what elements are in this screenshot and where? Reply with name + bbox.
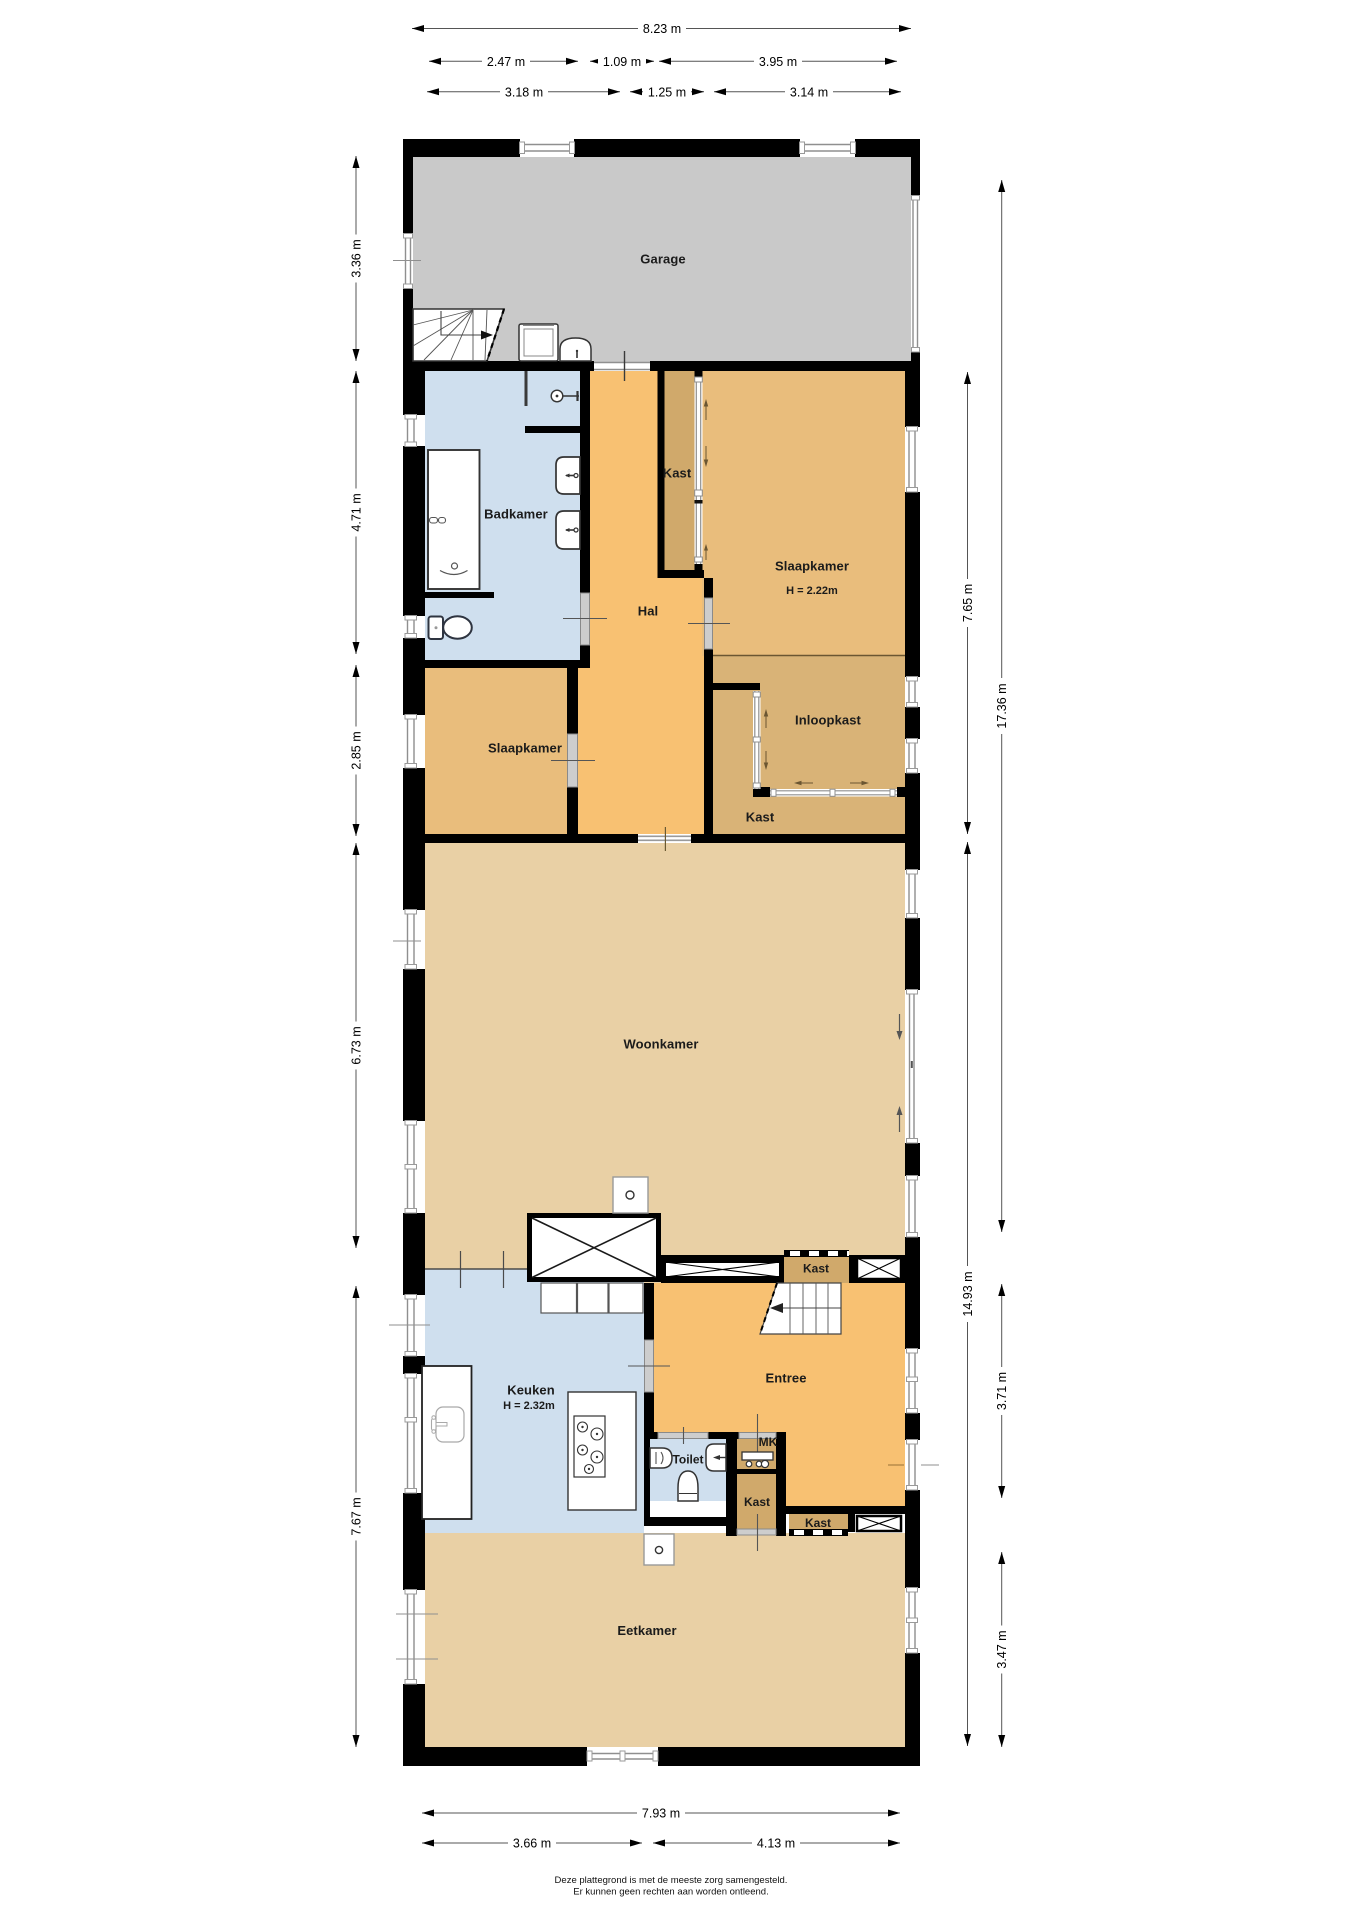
svg-text:Badkamer: Badkamer — [484, 507, 548, 522]
svg-text:4.13 m: 4.13 m — [757, 1837, 795, 1851]
svg-text:Keuken: Keuken — [507, 1383, 555, 1398]
svg-text:Slaapkamer: Slaapkamer — [775, 559, 849, 574]
svg-text:Kast: Kast — [744, 1495, 770, 1509]
svg-text:4.71 m: 4.71 m — [350, 493, 364, 531]
svg-text:8.23 m: 8.23 m — [643, 22, 681, 36]
svg-text:Kast: Kast — [803, 1262, 829, 1276]
svg-text:Er kunnen geen rechten aan wor: Er kunnen geen rechten aan worden ontlee… — [573, 1887, 768, 1898]
svg-text:2.85 m: 2.85 m — [350, 731, 364, 769]
svg-text:Slaapkamer: Slaapkamer — [488, 741, 562, 756]
svg-text:3.71 m: 3.71 m — [995, 1372, 1009, 1410]
svg-text:Kast: Kast — [746, 810, 775, 825]
svg-text:1.25 m: 1.25 m — [648, 86, 686, 100]
svg-text:6.73 m: 6.73 m — [350, 1026, 364, 1064]
svg-text:2.47 m: 2.47 m — [487, 55, 525, 69]
svg-text:3.36 m: 3.36 m — [350, 239, 364, 277]
svg-text:3.95 m: 3.95 m — [759, 55, 797, 69]
svg-text:Kast: Kast — [663, 466, 692, 481]
svg-text:H = 2.22m: H = 2.22m — [786, 585, 838, 597]
svg-text:3.66 m: 3.66 m — [513, 1837, 551, 1851]
svg-text:7.65 m: 7.65 m — [961, 584, 975, 622]
svg-text:Kast: Kast — [805, 1516, 831, 1530]
svg-text:1.09 m: 1.09 m — [603, 55, 641, 69]
svg-text:3.47 m: 3.47 m — [995, 1630, 1009, 1668]
svg-text:Entree: Entree — [765, 1371, 806, 1386]
svg-text:7.93 m: 7.93 m — [642, 1807, 680, 1821]
svg-text:Toilet: Toilet — [672, 1453, 703, 1467]
svg-text:17.36 m: 17.36 m — [995, 683, 1009, 728]
svg-text:3.14 m: 3.14 m — [790, 86, 828, 100]
svg-text:MK: MK — [759, 1435, 778, 1449]
svg-text:Hal: Hal — [638, 604, 659, 619]
svg-text:Woonkamer: Woonkamer — [623, 1037, 698, 1052]
svg-text:Deze plattegrond is met de mee: Deze plattegrond is met de meeste zorg s… — [555, 1875, 788, 1886]
svg-text:Garage: Garage — [640, 252, 685, 267]
svg-text:H = 2.32m: H = 2.32m — [503, 1400, 555, 1412]
svg-text:7.67 m: 7.67 m — [350, 1497, 364, 1535]
svg-text:3.18 m: 3.18 m — [505, 86, 543, 100]
svg-text:Eetkamer: Eetkamer — [617, 1623, 676, 1638]
svg-text:Inloopkast: Inloopkast — [795, 713, 862, 728]
svg-text:14.93 m: 14.93 m — [961, 1271, 975, 1316]
